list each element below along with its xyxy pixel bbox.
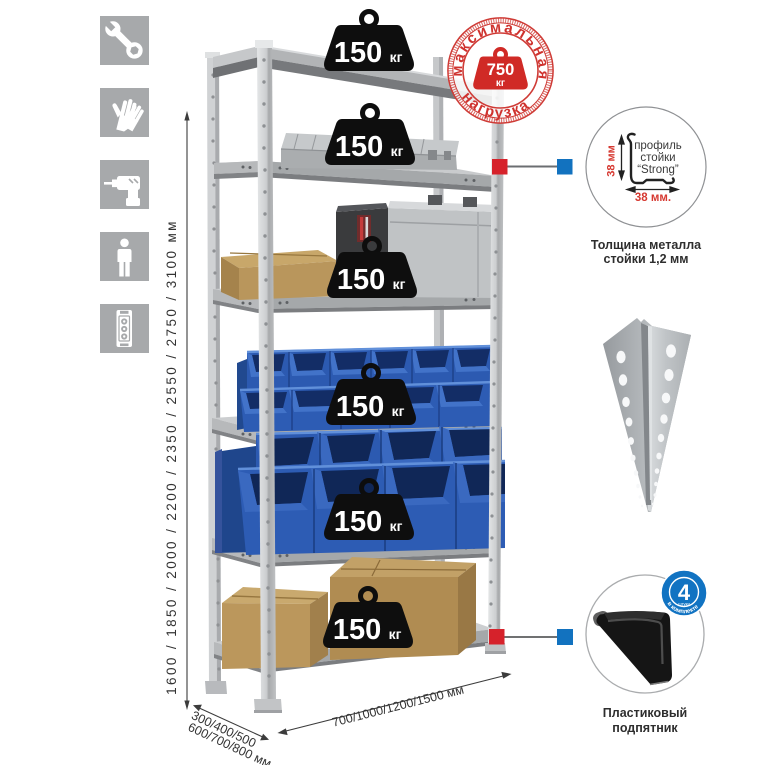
svg-text:стойки: стойки bbox=[640, 152, 675, 164]
svg-text:стойки 1,2 мм: стойки 1,2 мм bbox=[604, 252, 689, 266]
svg-text:подпятник: подпятник bbox=[612, 721, 678, 735]
svg-text:“Strong”: “Strong” bbox=[637, 164, 679, 176]
svg-text:38 мм.: 38 мм. bbox=[635, 192, 671, 204]
svg-text:700/1000/1200/1500 мм: 700/1000/1200/1500 мм bbox=[331, 683, 466, 730]
svg-text:Пластиковый: Пластиковый bbox=[603, 706, 687, 720]
svg-text:профиль: профиль bbox=[634, 140, 682, 152]
svg-text:1600 / 1850 / 2000 / 2200 / 23: 1600 / 1850 / 2000 / 2200 / 2350 / 2550 … bbox=[164, 219, 179, 695]
svg-text:Толщина металла: Толщина металла bbox=[591, 238, 702, 252]
svg-text:38 мм: 38 мм bbox=[606, 145, 618, 177]
svg-text:750: 750 bbox=[487, 61, 515, 79]
svg-text:кг: кг bbox=[496, 78, 505, 89]
svg-text:штуки: штуки bbox=[678, 602, 690, 607]
